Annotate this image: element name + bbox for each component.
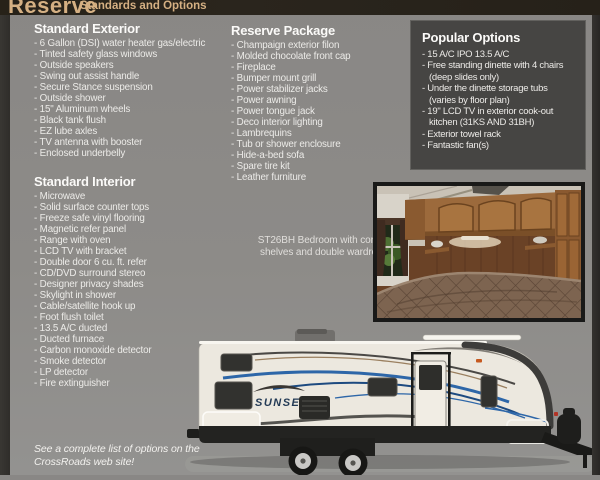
- popular-options-heading: Popular Options: [422, 30, 575, 45]
- list-item: - Magnetic refer panel: [34, 224, 231, 235]
- list-item: - Bumper mount grill: [231, 73, 399, 84]
- list-item: - CD/DVD surround stereo: [34, 268, 231, 279]
- trailer-illustration: SUNSET: [185, 328, 600, 475]
- list-item: - 19" LCD TV in exterior cook-out kitche…: [422, 106, 575, 129]
- list-item: - LCD TV with bracket: [34, 246, 231, 257]
- list-item: - Solid surface counter tops: [34, 202, 231, 213]
- standard-exterior-list: - 6 Gallon (DSI) water heater gas/electr…: [34, 38, 231, 159]
- list-item: - Fireplace: [231, 62, 399, 73]
- list-item: - Under the dinette storage tubs (varies…: [422, 83, 575, 106]
- list-item: - Lambrequins: [231, 128, 399, 139]
- list-item: - 15 A/C IPO 13.5 A/C: [422, 49, 575, 60]
- reserve-package-heading: Reserve Package: [231, 23, 399, 38]
- list-item: - Free standing dinette with 4 chairs (d…: [422, 60, 575, 83]
- list-item: - Power awning: [231, 95, 399, 106]
- list-item: - 15" Aluminum wheels: [34, 104, 231, 115]
- list-item: - Black tank flush: [34, 115, 231, 126]
- photo-caption: ST26BH Bedroom with corner shelves and d…: [240, 235, 388, 259]
- list-item: - Secure Stance suspension: [34, 82, 231, 93]
- list-item: - Double door 6 cu. ft. refer: [34, 257, 231, 268]
- list-item: - Freeze safe vinyl flooring: [34, 213, 231, 224]
- bedroom-photo-illustration: [377, 186, 581, 318]
- list-item: - Skylight in shower: [34, 290, 231, 301]
- page-subtitle: Standards and Options: [80, 0, 207, 12]
- page-edge-left: [0, 15, 10, 475]
- standard-exterior-heading: Standard Exterior: [34, 21, 231, 36]
- column-reserve-package: Reserve Package - Champaign exterior fil…: [231, 23, 399, 183]
- list-item: - Tub or shower enclosure: [231, 139, 399, 150]
- title-bar: Reserve Standards and Options: [0, 0, 600, 15]
- list-item: - Enclosed underbelly: [34, 148, 231, 159]
- list-item: - Power stabilizer jacks: [231, 84, 399, 95]
- footnote: See a complete list of options on the Cr…: [34, 443, 244, 469]
- list-item: - Cable/satellite hook up: [34, 301, 231, 312]
- list-item: - Power tongue jack: [231, 106, 399, 117]
- list-item: - Champaign exterior filon: [231, 40, 399, 51]
- list-item: - Microwave: [34, 191, 231, 202]
- list-item: - Outside speakers: [34, 60, 231, 71]
- popular-options-list: - 15 A/C IPO 13.5 A/C- Free standing din…: [422, 49, 575, 152]
- list-item: - Molded chocolate front cap: [231, 51, 399, 62]
- list-item: - TV antenna with booster: [34, 137, 231, 148]
- list-item: - Tinted safety glass windows: [34, 49, 231, 60]
- list-item: - Swing out assist handle: [34, 71, 231, 82]
- list-item: - EZ lube axles: [34, 126, 231, 137]
- list-item: - Fantastic fan(s): [422, 140, 575, 151]
- page-edge-right: [592, 15, 600, 475]
- list-item: - Range with oven: [34, 235, 231, 246]
- bedroom-photo: [373, 182, 585, 322]
- list-item: - Deco interior lighting: [231, 117, 399, 128]
- list-item: - Designer privacy shades: [34, 279, 231, 290]
- standard-interior-heading: Standard Interior: [34, 174, 231, 189]
- list-item: - Outside shower: [34, 93, 231, 104]
- trailer-svg: SUNSET: [185, 328, 600, 475]
- popular-options-panel: Popular Options - 15 A/C IPO 13.5 A/C- F…: [410, 20, 586, 170]
- list-item: - Hide-a-bed sofa: [231, 150, 399, 161]
- list-item: - Exterior towel rack: [422, 129, 575, 140]
- list-item: - Foot flush toilet: [34, 312, 231, 323]
- reserve-package-list: - Champaign exterior filon- Molded choco…: [231, 40, 399, 183]
- list-item: - Spare tire kit: [231, 161, 399, 172]
- list-item: - 6 Gallon (DSI) water heater gas/electr…: [34, 38, 231, 49]
